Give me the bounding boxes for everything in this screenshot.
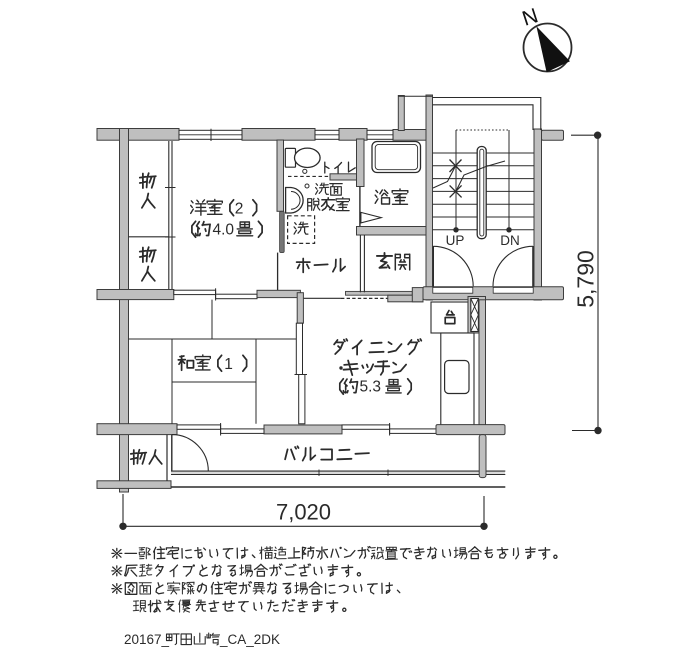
svg-text:1: 1 bbox=[224, 356, 233, 373]
svg-text:_CA_2DK: _CA_2DK bbox=[219, 632, 280, 647]
svg-text:20167_: 20167_ bbox=[124, 632, 170, 647]
svg-text:5,790: 5,790 bbox=[573, 250, 599, 308]
svg-text:DN: DN bbox=[500, 233, 520, 248]
svg-text:4.0: 4.0 bbox=[213, 222, 235, 239]
svg-text:UP: UP bbox=[446, 233, 465, 248]
svg-text:5.3: 5.3 bbox=[360, 379, 382, 396]
svg-text:7,020: 7,020 bbox=[276, 500, 331, 525]
svg-text:2: 2 bbox=[235, 201, 244, 218]
